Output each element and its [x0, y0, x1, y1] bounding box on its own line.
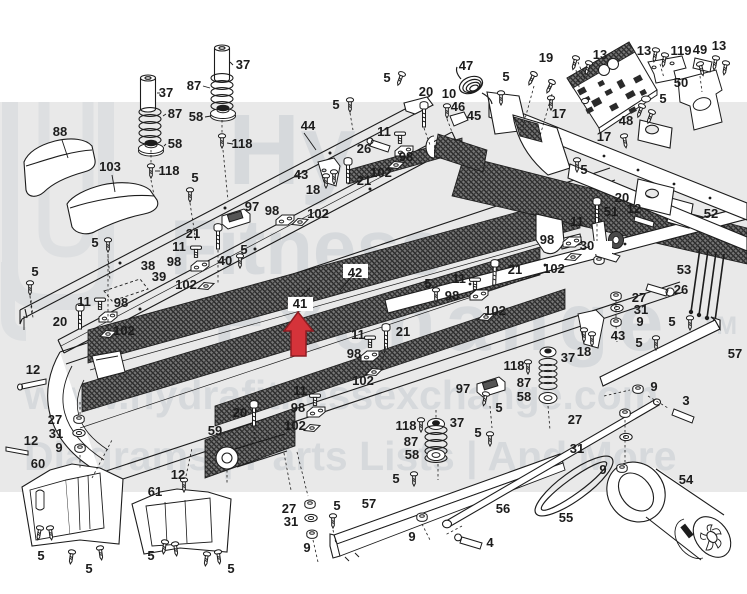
- svg-text:5: 5: [383, 70, 390, 85]
- svg-text:4: 4: [486, 535, 494, 550]
- svg-text:51: 51: [604, 204, 618, 219]
- svg-text:102: 102: [543, 261, 565, 276]
- svg-text:58: 58: [517, 389, 531, 404]
- svg-text:Diagrams | Parts Lists | And M: Diagrams | Parts Lists | And More: [24, 433, 677, 479]
- svg-text:26: 26: [674, 282, 688, 297]
- svg-text:9: 9: [303, 540, 310, 555]
- svg-text:98: 98: [291, 400, 305, 415]
- svg-text:11: 11: [452, 271, 466, 286]
- svg-text:5: 5: [91, 235, 98, 250]
- svg-text:58: 58: [168, 136, 182, 151]
- svg-text:42: 42: [348, 265, 362, 280]
- svg-text:9: 9: [650, 379, 657, 394]
- svg-text:60: 60: [31, 456, 45, 471]
- svg-text:12: 12: [24, 433, 38, 448]
- svg-text:41: 41: [293, 296, 307, 311]
- svg-text:5: 5: [332, 97, 339, 112]
- svg-text:5: 5: [635, 335, 642, 350]
- svg-text:21: 21: [357, 173, 371, 188]
- svg-text:5: 5: [147, 548, 154, 563]
- svg-text:56: 56: [496, 501, 510, 516]
- svg-text:59: 59: [208, 423, 222, 438]
- svg-text:18: 18: [577, 344, 591, 359]
- svg-text:103: 103: [99, 159, 121, 174]
- svg-text:19: 19: [539, 50, 553, 65]
- svg-text:5: 5: [191, 170, 198, 185]
- svg-text:119: 119: [671, 43, 692, 58]
- svg-text:102: 102: [484, 303, 506, 318]
- svg-text:37: 37: [561, 350, 575, 365]
- svg-text:9: 9: [636, 314, 643, 329]
- svg-text:55: 55: [559, 510, 573, 525]
- svg-text:118: 118: [504, 358, 525, 373]
- svg-text:47: 47: [459, 58, 473, 73]
- svg-text:102: 102: [352, 373, 374, 388]
- svg-text:98: 98: [445, 288, 459, 303]
- svg-text:11: 11: [570, 214, 584, 229]
- svg-text:98: 98: [265, 203, 279, 218]
- svg-text:40: 40: [218, 253, 232, 268]
- svg-text:9: 9: [599, 462, 606, 477]
- svg-text:53: 53: [677, 262, 691, 277]
- svg-text:5: 5: [474, 425, 481, 440]
- svg-text:21: 21: [508, 262, 522, 277]
- svg-text:48: 48: [619, 113, 633, 128]
- svg-text:31: 31: [570, 441, 584, 456]
- svg-text:98: 98: [167, 254, 181, 269]
- svg-text:26: 26: [357, 141, 371, 156]
- svg-text:17: 17: [597, 129, 611, 144]
- svg-text:37: 37: [236, 57, 250, 72]
- svg-text:98: 98: [114, 295, 128, 310]
- svg-text:87: 87: [517, 375, 531, 390]
- svg-text:31: 31: [49, 426, 63, 441]
- svg-text:118: 118: [396, 418, 417, 433]
- svg-text:5: 5: [37, 548, 44, 563]
- svg-text:118: 118: [159, 163, 180, 178]
- svg-text:46: 46: [451, 99, 465, 114]
- svg-text:17: 17: [552, 106, 566, 121]
- svg-text:58: 58: [189, 109, 203, 124]
- svg-text:87: 87: [168, 106, 182, 121]
- svg-text:5: 5: [424, 276, 431, 291]
- svg-text:54: 54: [679, 472, 694, 487]
- svg-text:12: 12: [627, 201, 641, 216]
- svg-text:43: 43: [611, 328, 625, 343]
- svg-text:13: 13: [637, 43, 651, 58]
- svg-text:102: 102: [175, 277, 197, 292]
- svg-text:11: 11: [351, 327, 365, 342]
- svg-text:5: 5: [668, 314, 675, 329]
- svg-text:21: 21: [396, 324, 410, 339]
- svg-text:97: 97: [245, 199, 259, 214]
- svg-text:3: 3: [682, 393, 689, 408]
- svg-text:12: 12: [171, 467, 185, 482]
- svg-text:5: 5: [392, 471, 399, 486]
- svg-text:21: 21: [186, 226, 200, 241]
- svg-text:97: 97: [456, 381, 470, 396]
- svg-text:102: 102: [307, 206, 329, 221]
- svg-text:118: 118: [232, 136, 253, 151]
- svg-text:102: 102: [370, 165, 392, 180]
- svg-text:11: 11: [377, 124, 391, 139]
- svg-text:52: 52: [704, 206, 718, 221]
- svg-text:9: 9: [408, 529, 415, 544]
- svg-text:11: 11: [77, 294, 91, 309]
- svg-text:44: 44: [301, 118, 316, 133]
- svg-text:102: 102: [113, 323, 135, 338]
- svg-text:57: 57: [362, 496, 376, 511]
- svg-text:39: 39: [152, 269, 166, 284]
- svg-text:5: 5: [85, 561, 92, 576]
- svg-text:87: 87: [187, 78, 201, 93]
- svg-text:98: 98: [399, 149, 413, 164]
- svg-text:5: 5: [580, 162, 587, 177]
- svg-text:13: 13: [712, 38, 726, 53]
- svg-text:18: 18: [306, 182, 320, 197]
- svg-text:5: 5: [31, 264, 38, 279]
- svg-text:61: 61: [148, 484, 162, 499]
- svg-text:5: 5: [495, 400, 502, 415]
- svg-text:20: 20: [53, 314, 67, 329]
- svg-text:5: 5: [502, 69, 509, 84]
- svg-text:37: 37: [159, 85, 173, 100]
- svg-text:98: 98: [347, 346, 361, 361]
- svg-text:37: 37: [450, 415, 464, 430]
- svg-text:9: 9: [55, 440, 62, 455]
- svg-text:102: 102: [284, 418, 306, 433]
- svg-text:20: 20: [233, 405, 247, 420]
- svg-text:31: 31: [284, 514, 298, 529]
- svg-text:5: 5: [227, 561, 234, 576]
- svg-text:58: 58: [405, 447, 419, 462]
- svg-text:5: 5: [659, 91, 666, 106]
- svg-text:13: 13: [593, 47, 607, 62]
- svg-text:12: 12: [26, 362, 40, 377]
- svg-text:20: 20: [419, 84, 433, 99]
- svg-text:11: 11: [172, 239, 186, 254]
- svg-text:50: 50: [674, 75, 688, 90]
- svg-text:27: 27: [568, 412, 582, 427]
- svg-text:49: 49: [693, 42, 707, 57]
- svg-text:5: 5: [333, 498, 340, 513]
- svg-text:88: 88: [53, 124, 67, 139]
- svg-text:57: 57: [728, 346, 742, 361]
- svg-text:98: 98: [540, 232, 554, 247]
- svg-text:30: 30: [580, 238, 594, 253]
- svg-text:27: 27: [48, 412, 62, 427]
- svg-text:5: 5: [240, 242, 247, 257]
- svg-text:45: 45: [467, 108, 481, 123]
- svg-text:11: 11: [293, 383, 307, 398]
- svg-text:43: 43: [294, 167, 308, 182]
